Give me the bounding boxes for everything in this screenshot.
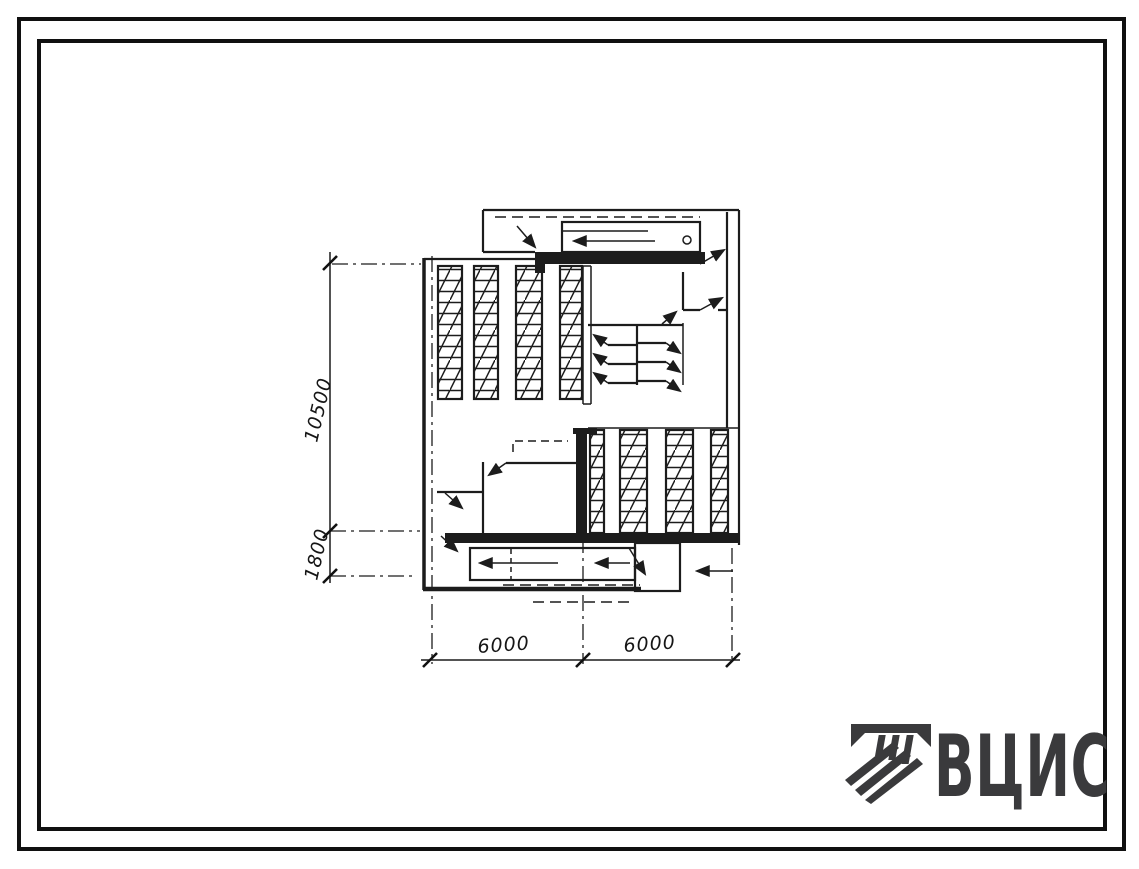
wall-mid-band [445,533,738,543]
door-swing-room [700,298,722,310]
door-swing-room-top [489,463,506,475]
door-swing-stall [594,335,608,345]
dim-label-height-entry: 1800 [300,526,333,582]
partition-wall-lower [576,430,587,535]
storage-rack [516,266,542,399]
dim-label-span-right: 6000 [623,631,677,657]
storage-racks-upper [438,266,582,399]
door-swing-top-left [517,226,535,247]
dim-label-height-total: 10500 [300,375,336,444]
stair-treads-bottom [470,548,635,580]
bottom-staircase [470,543,733,602]
door-swing-stall [666,381,680,391]
stair-start-circle [683,236,691,244]
vcis-logo: ВЦИС [843,720,1093,805]
storage-rack [666,430,693,533]
dim-label-span-left: 6000 [477,632,531,658]
logo-text: ВЦИС [934,724,1110,810]
stair-landing-box [635,543,680,591]
door-swing-stall [666,343,680,353]
door-swing-stair-box [629,548,645,574]
door-swing-stall [594,373,608,383]
stall-grid [588,323,683,391]
storage-rack [474,266,498,399]
room-partition [683,272,727,310]
storage-rack [560,266,582,399]
storage-rack [438,266,462,399]
top-staircase [483,210,739,252]
door-swing-stall [594,354,608,364]
door-swing-stall [666,362,680,372]
storage-rack [620,430,647,533]
partition-wall-upper [583,266,591,404]
storage-rack [711,430,728,533]
storage-rack [590,430,604,533]
stair-treads-top [562,222,700,252]
landing-slab [535,252,705,264]
door-swing-corridor [445,493,462,508]
hatched-beam-emblem-icon [845,722,937,806]
door-swing-stall-top [662,312,676,324]
dashed-room-outline [513,441,568,452]
blueprint-sheet: 10500 1800 6000 6000 ВЦИС [0,0,1139,869]
storage-racks-lower [590,430,728,533]
